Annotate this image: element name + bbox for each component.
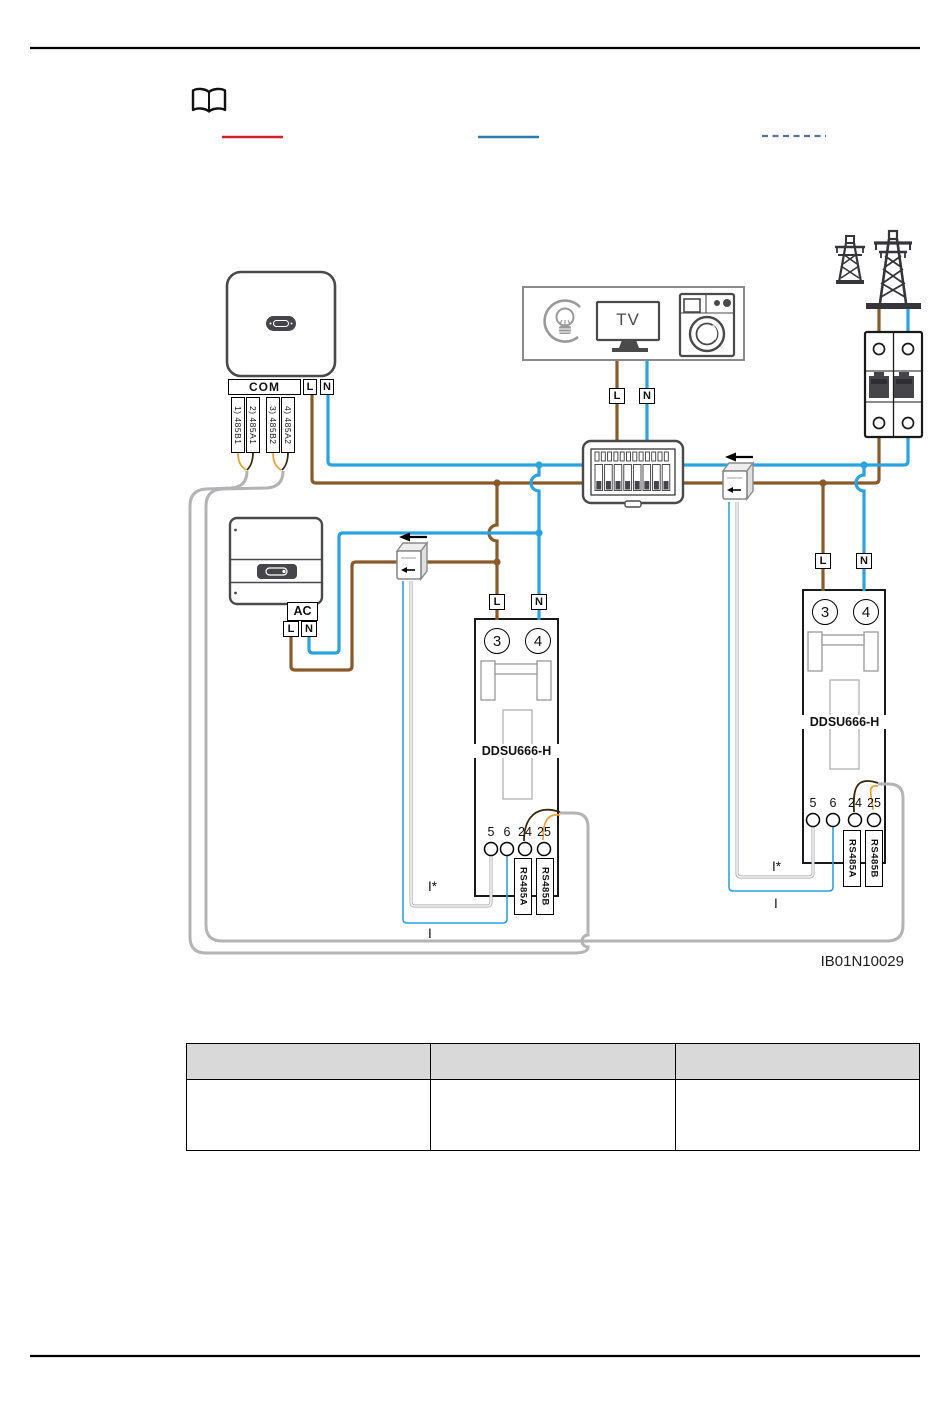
meter-right-terminal-6: 6 [827,797,839,810]
grid-tower-icon [835,231,921,309]
meter-left-terminal-3: 3 [484,628,510,654]
inverter1-l-label: L [303,379,317,395]
table-header-cell [675,1044,919,1080]
inverter-main-body [227,272,335,376]
inverter2-l-label: L [283,621,299,637]
ac-port-label: AC [287,602,318,621]
legend [222,136,826,137]
inverter-secondary-body [230,518,322,604]
meter-right-current-out-label: I [774,897,778,910]
energy-direction-arrow [725,453,753,462]
loads-l-label: L [609,388,625,404]
meter-right-terminal-24: 24 [847,797,863,810]
manual-page: COM L N 1) 485B1 2) 485A1 3) 485B2 4) 48… [0,0,950,1408]
meter-left-model: DDSU666-H [466,744,567,758]
ct-clamp-inverter2 [397,533,427,580]
table-header-cell [187,1044,431,1080]
meter-left-current-in-label: I* [428,880,437,893]
meter-left-n-label: N [531,594,547,610]
spec-table [186,1043,920,1151]
com-terminal-485b2: 3) 485B2 [266,397,280,453]
inverter1-n-label: N [320,379,334,395]
meter-right-l-label: L [815,553,831,569]
com-terminal-485a2: 4) 485A2 [281,397,295,453]
meter-right-terminal-3: 3 [812,599,838,625]
table-cell [187,1080,431,1151]
meter-left-terminal-4: 4 [525,628,551,654]
table-row [187,1080,920,1151]
ct-clamp-grid [723,453,753,500]
wiring-diagram [0,0,950,1408]
table-header-cell [431,1044,675,1080]
meter-right-rs485b: RS485B [865,830,883,887]
meter-left-rs485a: RS485A [514,858,532,915]
meter-right-terminal-25: 25 [866,797,882,810]
table-cell [675,1080,919,1151]
meter-left-rs485b: RS485B [536,858,554,915]
circuit-breaker [865,332,922,437]
meter-right-rs485a: RS485A [843,830,861,887]
table-header-row [187,1044,920,1080]
figure-code: IB01N10029 [758,953,904,970]
tv-label: TV [598,310,658,330]
meter-left-terminal-6: 6 [501,826,513,839]
washing-machine-icon [680,294,734,356]
meter-left-current-out-label: I [428,927,432,940]
com-terminal-485b1: 1) 485B1 [231,397,245,453]
meter-left-terminal-5: 5 [485,826,497,839]
note-book-icon [193,89,225,112]
meter-right-terminal-5: 5 [807,797,819,810]
distribution-box [583,441,683,507]
table-cell [431,1080,675,1151]
meter-left-terminal-24: 24 [517,826,533,839]
com-terminal-485a1: 2) 485A1 [246,397,260,453]
loads-n-label: N [639,388,655,404]
meter-right-terminal-4: 4 [853,599,879,625]
meter-left-l-label: L [489,594,505,610]
meter-left-terminal-25: 25 [536,826,552,839]
meter-right-model: DDSU666-H [794,715,895,729]
com-port-label: COM [228,379,301,395]
meter-right-n-label: N [856,553,872,569]
inverter2-n-label: N [301,621,317,637]
meter-right-current-in-label: I* [772,860,781,873]
